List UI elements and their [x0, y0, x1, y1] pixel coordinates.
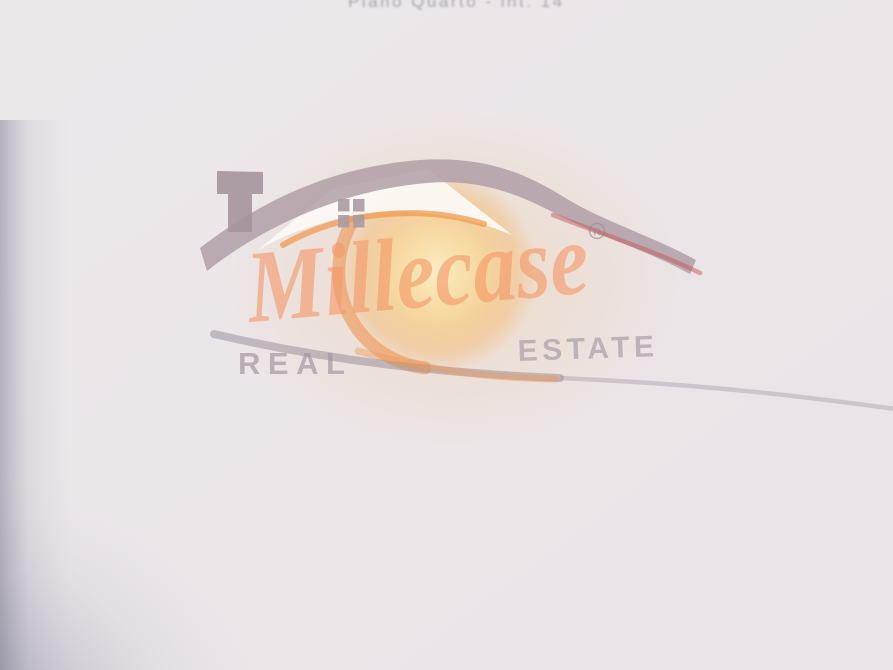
svg-text:ESTATE: ESTATE: [517, 330, 659, 368]
svg-text:Piano Quarto - int. 14: Piano Quarto - int. 14: [348, 0, 565, 11]
